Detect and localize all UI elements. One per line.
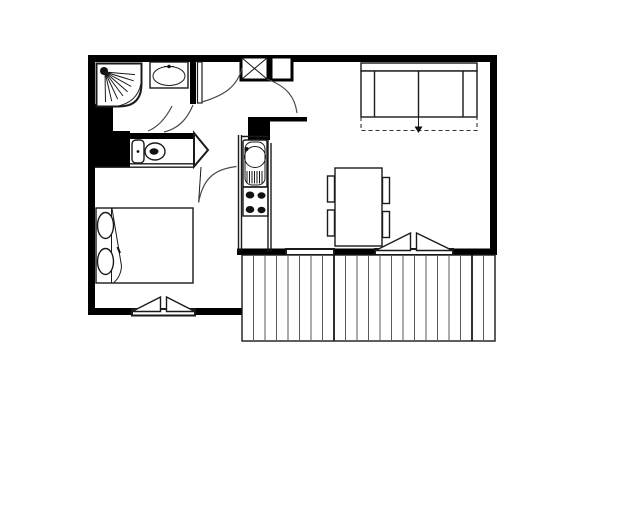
sink-tap-icon — [245, 147, 249, 151]
living-room — [328, 63, 478, 246]
burner-3 — [246, 206, 255, 213]
floor-plan-drawing — [0, 0, 640, 524]
living-room-door-arc — [267, 79, 297, 113]
burner-4 — [258, 207, 266, 213]
dining-set — [328, 168, 390, 246]
wall-living-bottom-1 — [237, 249, 286, 256]
bathroom-door — [148, 105, 193, 132]
bathroom — [97, 62, 189, 107]
wall-left — [88, 55, 95, 315]
kitchen-sink — [243, 140, 267, 187]
pillow-2 — [98, 249, 114, 275]
bathroom-door-arc — [164, 105, 193, 132]
wall-pointed-end — [194, 133, 208, 167]
wall-bathroom-right — [190, 62, 196, 104]
balcony — [242, 255, 495, 341]
pullout-arrow-head-icon — [415, 127, 423, 134]
wall-bedroom-bottom-left — [88, 308, 132, 315]
living-window-casement-right — [417, 233, 453, 251]
sink-drainer-lines — [247, 171, 262, 184]
wall-wc-top — [130, 133, 194, 139]
wc-niche — [132, 140, 165, 163]
washbasin-tap-icon — [167, 65, 171, 69]
burner-1 — [246, 192, 255, 199]
sofa-back — [361, 63, 477, 71]
burner-2 — [258, 192, 266, 198]
entry-door-leaf — [198, 62, 203, 103]
double-bed — [96, 208, 193, 283]
closet-plain-square — [271, 57, 292, 80]
entry-door — [198, 62, 243, 103]
floor-plan-page — [0, 0, 640, 524]
bedroom-window — [132, 297, 195, 316]
toilet-bowl-center — [150, 148, 159, 154]
stove — [243, 187, 268, 216]
entry-door-arc — [202, 68, 242, 102]
wall-living-bottom-2 — [334, 249, 375, 256]
chair-1 — [328, 176, 335, 202]
pillow-1 — [98, 213, 114, 239]
chair-2 — [328, 210, 335, 236]
toilet-tank-button — [137, 150, 140, 153]
bedroom-window-casement-left — [132, 297, 161, 312]
storage-closets — [241, 57, 292, 80]
kitchenette — [243, 140, 268, 216]
wall-bathroom-corner-a — [95, 104, 113, 167]
chair-3 — [383, 178, 390, 204]
bedroom-door — [199, 167, 237, 203]
bedroom-door-arc — [199, 167, 237, 203]
bedroom-window-casement-right — [167, 297, 196, 312]
wall-bathroom-corner-b — [113, 131, 130, 167]
balcony-deck-planks — [254, 256, 484, 340]
toilet — [132, 140, 165, 163]
living-room-door — [267, 79, 297, 113]
washbasin — [150, 62, 188, 88]
living-room-window-fixed — [286, 249, 334, 255]
sofa-bed — [361, 63, 477, 133]
shower — [97, 64, 142, 107]
bathroom-door-arc2 — [148, 106, 172, 131]
wall-right — [490, 55, 497, 255]
living-window-frame-1 — [286, 249, 334, 255]
wall-kitchen-top — [270, 117, 307, 122]
wall-kitchen-left-lines — [239, 135, 242, 252]
wall-living-bottom-3 — [453, 249, 497, 256]
chair-4 — [383, 212, 390, 238]
dining-table — [335, 168, 382, 246]
wall-bedroom-bottom-right — [195, 308, 242, 315]
bedroom — [96, 208, 193, 283]
